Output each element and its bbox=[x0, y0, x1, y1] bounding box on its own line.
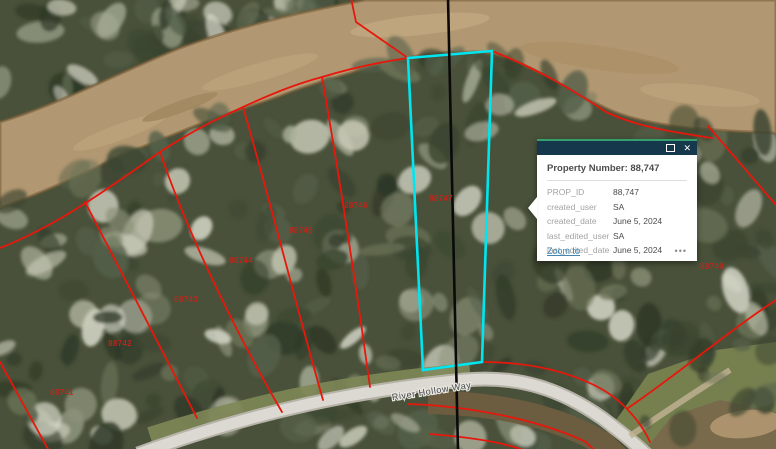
parcel-number-label: 88746 bbox=[344, 201, 368, 210]
zoom-to-link[interactable]: Zoom to bbox=[547, 246, 580, 256]
field-label: created_user bbox=[547, 202, 613, 212]
popup-title: Property Number: 88,747 bbox=[547, 160, 687, 181]
close-icon[interactable]: ✕ bbox=[683, 144, 691, 153]
field-value: SA bbox=[613, 231, 687, 241]
map-canvas[interactable]: 8874188742887438874488745887468874788749… bbox=[0, 0, 776, 449]
field-label: created_date bbox=[547, 216, 613, 226]
more-options-button[interactable]: ••• bbox=[675, 248, 687, 254]
parcel-number-label: 88747 bbox=[429, 194, 453, 203]
dock-icon[interactable] bbox=[666, 144, 675, 152]
feature-popup: ✕ Property Number: 88,747 PROP_ID88,747c… bbox=[537, 139, 697, 261]
parcel-number-label: 88743 bbox=[174, 295, 198, 304]
field-value: SA bbox=[613, 202, 687, 212]
parcel-number-label: 88741 bbox=[50, 388, 74, 397]
popup-pointer bbox=[528, 197, 537, 219]
field-label: PROP_ID bbox=[547, 187, 613, 197]
field-label: last_edited_user bbox=[547, 231, 613, 241]
parcel-number-label: 88745 bbox=[289, 226, 313, 235]
field-value: 88,747 bbox=[613, 187, 687, 197]
popup-fields: PROP_ID88,747created_userSAcreated_dateJ… bbox=[547, 187, 687, 255]
parcel-number-label: 88742 bbox=[108, 339, 132, 348]
field-value: June 5, 2024 bbox=[613, 216, 687, 226]
popup-header: ✕ bbox=[537, 139, 697, 155]
parcel-number-label: 88744 bbox=[229, 256, 253, 265]
parcel-number-label: 88749 bbox=[700, 262, 724, 271]
